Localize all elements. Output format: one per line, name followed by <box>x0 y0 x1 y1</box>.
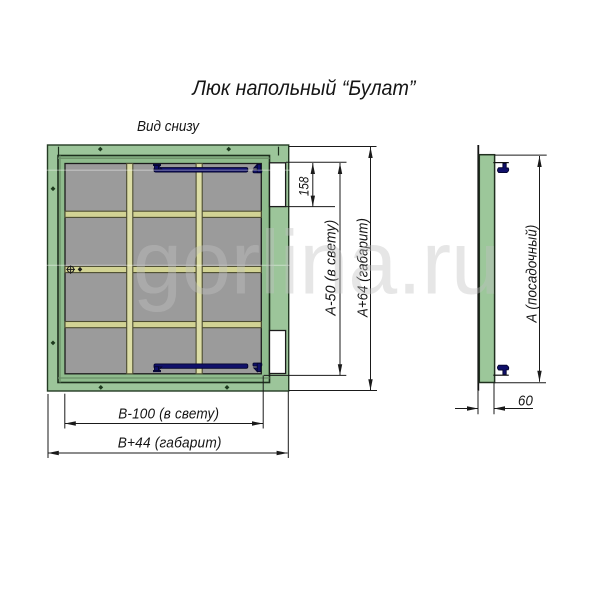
svg-text:В-100 (в свету): В-100 (в свету) <box>118 406 219 423</box>
svg-text:В+44 (габарит): В+44 (габарит) <box>118 435 222 452</box>
svg-text:60: 60 <box>518 393 533 410</box>
svg-text:158: 158 <box>295 177 311 197</box>
svg-text:Люк напольный “Булат”: Люк напольный “Булат” <box>191 77 417 100</box>
svg-text:gorlina.ru: gorlina.ru <box>133 214 500 314</box>
svg-text:А (посадочный): А (посадочный) <box>523 225 540 324</box>
svg-text:Вид снизу: Вид снизу <box>137 119 200 135</box>
